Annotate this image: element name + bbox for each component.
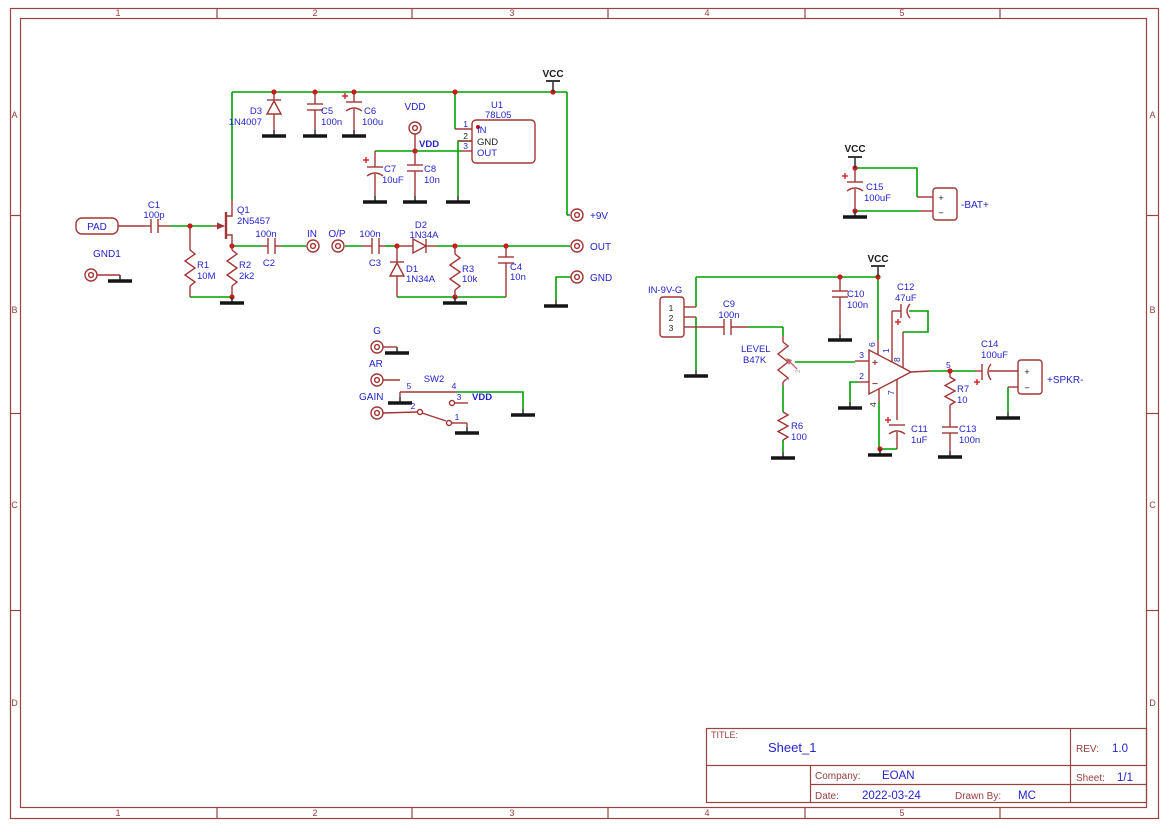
opamp-pin-5: 5 bbox=[946, 360, 951, 370]
potentiometer-level[interactable]: LEVEL B47K 3 2 1 bbox=[741, 336, 802, 386]
bat-plus-mark: + bbox=[938, 193, 944, 204]
diode-d3[interactable]: D3 1N4007 bbox=[229, 92, 281, 130]
opamp-pin-8: 8 bbox=[892, 357, 902, 362]
sw2-ref[interactable]: SW2 bbox=[424, 374, 445, 385]
frame-col-4-bottom: 4 bbox=[704, 808, 709, 818]
c15-val[interactable]: 100uF bbox=[864, 193, 891, 204]
capacitor-c12[interactable]: C12 47uF bbox=[892, 282, 917, 325]
d3-val[interactable]: 1N4007 bbox=[229, 117, 262, 128]
c14-val[interactable]: 100uF bbox=[981, 350, 1008, 361]
c1-val[interactable]: 100p bbox=[143, 210, 164, 221]
d3-ref[interactable]: D3 bbox=[250, 106, 262, 117]
net-label-vdd-sw[interactable]: VDD bbox=[472, 392, 492, 403]
port-gnd-label[interactable]: GND bbox=[590, 273, 612, 284]
port-bullseye-icon bbox=[571, 271, 583, 283]
c10-ref[interactable]: C10 bbox=[847, 289, 864, 300]
opamp-pin-2: 2 bbox=[859, 371, 864, 381]
ground-icon bbox=[771, 452, 795, 458]
c12-ref[interactable]: C12 bbox=[897, 282, 914, 293]
capacitor-c7[interactable]: C7 10uF bbox=[363, 151, 404, 196]
c3-ref[interactable]: C3 bbox=[369, 258, 381, 269]
port-g-label[interactable]: G bbox=[373, 326, 381, 337]
frame-col-2-top: 2 bbox=[312, 8, 317, 18]
opamp-minus-mark: − bbox=[872, 379, 878, 390]
ground-icon bbox=[446, 196, 470, 202]
ground-icon bbox=[511, 409, 535, 415]
ground-icon bbox=[843, 211, 867, 217]
schematic-canvas[interactable]: 1 2 3 4 5 1 2 3 4 5 A B C D A B C D bbox=[0, 0, 1169, 827]
port-vdd-label[interactable]: VDD bbox=[404, 102, 425, 113]
capacitor-c1[interactable]: C1 100p bbox=[143, 200, 170, 233]
spkr-plus-mark: + bbox=[1024, 367, 1030, 378]
c13-val[interactable]: 100n bbox=[959, 435, 980, 446]
u1-pin-name-out: OUT bbox=[477, 148, 497, 159]
port-gnd1-label[interactable]: GND1 bbox=[93, 249, 121, 260]
frame-row-d-right: D bbox=[1149, 698, 1156, 708]
ground-icon bbox=[443, 297, 467, 303]
sw2-pin-5: 5 bbox=[407, 381, 412, 391]
drawn-by-value: MC bbox=[1018, 790, 1036, 802]
r7-ref[interactable]: R7 bbox=[957, 384, 969, 395]
frame-col-5-bottom: 5 bbox=[899, 808, 904, 818]
pot-pin-1: 1 bbox=[784, 377, 791, 381]
sheet-title: Sheet_1 bbox=[768, 740, 816, 755]
capacitor-c3[interactable]: 100n C3 bbox=[359, 229, 385, 269]
c10-val[interactable]: 100n bbox=[847, 300, 868, 311]
frame-col-3-bottom: 3 bbox=[509, 808, 514, 818]
capacitor-c13[interactable]: C13 100n bbox=[942, 424, 980, 451]
resistor-r6[interactable]: R6 100 bbox=[778, 412, 807, 443]
ground-icon bbox=[388, 397, 412, 403]
r2-val[interactable]: 2k2 bbox=[239, 271, 254, 282]
port-bullseye-icon bbox=[571, 240, 583, 252]
u1-pin-name-in: IN bbox=[477, 125, 487, 136]
rev-label: REV: bbox=[1076, 744, 1099, 755]
sw2-pin-4: 4 bbox=[452, 381, 457, 391]
q1-ref[interactable]: Q1 bbox=[237, 205, 250, 216]
resistor-r7[interactable]: R7 10 bbox=[945, 371, 969, 427]
in9vg-pin-2: 2 bbox=[669, 313, 674, 323]
capacitor-c5[interactable]: C5 100n bbox=[307, 92, 342, 130]
frame-row-a-right: A bbox=[1149, 110, 1155, 120]
in9vg-label[interactable]: IN-9V-G bbox=[648, 285, 682, 296]
port-in[interactable]: IN bbox=[307, 229, 319, 252]
opamp-pin-1: 1 bbox=[881, 348, 891, 353]
port-ar-label[interactable]: AR bbox=[369, 359, 383, 370]
port-g[interactable]: G bbox=[371, 326, 397, 353]
opamp-pin-3: 3 bbox=[859, 350, 864, 360]
q1-val[interactable]: 2N5457 bbox=[237, 216, 270, 227]
net-label-vdd[interactable]: VDD bbox=[419, 139, 439, 150]
ground-icon bbox=[938, 451, 962, 457]
frame-col-5-top: 5 bbox=[899, 8, 904, 18]
port-9v[interactable]: +9V bbox=[571, 209, 608, 222]
u1-pin-2: 2 bbox=[463, 131, 468, 141]
junction-dots bbox=[187, 89, 952, 451]
capacitor-c2[interactable]: 100n C2 bbox=[255, 229, 281, 269]
port-bullseye-icon bbox=[371, 341, 383, 353]
frame-col-3-top: 3 bbox=[509, 8, 514, 18]
sheet-label: Sheet: bbox=[1076, 773, 1105, 784]
c6-val[interactable]: 100u bbox=[362, 117, 383, 128]
r7-val[interactable]: 10 bbox=[957, 395, 968, 406]
frame-col-1-top: 1 bbox=[115, 8, 120, 18]
c2-ref[interactable]: C2 bbox=[263, 258, 275, 269]
u1-pin-name-gnd: GND bbox=[477, 137, 498, 148]
port-gnd1[interactable]: GND1 bbox=[85, 249, 121, 281]
port-bullseye-icon bbox=[371, 374, 383, 386]
frame-row-b-right: B bbox=[1149, 305, 1155, 315]
c9-val[interactable]: 100n bbox=[718, 310, 739, 321]
wires[interactable] bbox=[170, 92, 1008, 452]
c11-ref[interactable]: C11 bbox=[911, 424, 928, 435]
capacitor-c11[interactable]: C11 1uF bbox=[885, 417, 928, 449]
drawn-by-label: Drawn By: bbox=[955, 791, 1001, 802]
vcc-flag-icon bbox=[871, 266, 885, 277]
ground-symbols bbox=[108, 130, 1020, 458]
resistor-r1[interactable]: R1 10M bbox=[185, 226, 216, 297]
company-label: Company: bbox=[815, 771, 861, 782]
capacitor-c9[interactable]: C9 100n bbox=[700, 299, 748, 335]
ground-icon bbox=[220, 297, 244, 303]
polarity-plus-icon bbox=[974, 379, 980, 385]
u1-val[interactable]: 78L05 bbox=[485, 110, 511, 121]
port-gain[interactable]: GAIN bbox=[359, 392, 383, 419]
vcc-flag-label[interactable]: VCC bbox=[867, 254, 888, 265]
polarity-plus-icon bbox=[363, 157, 369, 163]
date-label: Date: bbox=[815, 791, 839, 802]
c11-val[interactable]: 1uF bbox=[911, 435, 928, 446]
port-bullseye-icon bbox=[85, 269, 97, 281]
port-out-label[interactable]: OUT bbox=[590, 242, 611, 253]
ground-icon bbox=[684, 370, 708, 376]
ground-icon bbox=[544, 300, 568, 306]
ground-icon bbox=[385, 347, 409, 353]
port-bullseye-icon bbox=[571, 209, 583, 221]
r1-val[interactable]: 10M bbox=[197, 271, 216, 282]
port-ar[interactable]: AR bbox=[369, 359, 400, 386]
r2-ref[interactable]: R2 bbox=[239, 260, 251, 271]
ground-icon bbox=[828, 334, 852, 340]
polarity-plus-icon bbox=[895, 319, 901, 325]
capacitor-c14[interactable]: C14 100uF bbox=[974, 339, 1018, 385]
sw2-pin-1: 1 bbox=[455, 412, 460, 422]
u1-pin-1: 1 bbox=[463, 119, 468, 129]
ground-icon bbox=[403, 196, 427, 202]
port-out[interactable]: OUT bbox=[571, 240, 611, 253]
polarity-plus-icon bbox=[885, 417, 891, 423]
r3-val[interactable]: 10k bbox=[462, 274, 478, 285]
port-pad[interactable]: PAD bbox=[76, 218, 145, 234]
in9vg-pin-3: 3 bbox=[669, 323, 674, 333]
c9-ref[interactable]: C9 bbox=[723, 299, 735, 310]
ground-icon bbox=[996, 412, 1020, 418]
resistor-r3[interactable]: R3 10k bbox=[450, 246, 478, 297]
capacitor-c6[interactable]: C6 100u bbox=[342, 92, 383, 130]
in9vg-pin-1: 1 bbox=[669, 303, 674, 313]
bat-label[interactable]: -BAT+ bbox=[961, 200, 989, 211]
c6-ref[interactable]: C6 bbox=[364, 106, 376, 117]
polarity-plus-icon bbox=[342, 93, 348, 99]
rev-value: 1.0 bbox=[1112, 743, 1128, 755]
port-op-label[interactable]: O/P bbox=[328, 229, 346, 240]
ground-icon bbox=[455, 427, 479, 433]
c5-ref[interactable]: C5 bbox=[321, 106, 333, 117]
sw2-pin-2: 2 bbox=[411, 401, 416, 411]
capacitor-c4[interactable]: C4 10n bbox=[498, 246, 526, 297]
pot-val[interactable]: B47K bbox=[743, 355, 767, 366]
ground-icon bbox=[108, 275, 132, 281]
schematic-sheet: 1 2 3 4 5 1 2 3 4 5 A B C D A B C D bbox=[0, 0, 1169, 827]
port-bullseye-icon bbox=[332, 240, 344, 252]
r6-val[interactable]: 100 bbox=[791, 432, 807, 443]
r6-ref[interactable]: R6 bbox=[791, 421, 803, 432]
ic-u1[interactable]: U1 78L05 1 2 3 IN GND OUT bbox=[455, 100, 535, 163]
port-gain-label[interactable]: GAIN bbox=[359, 392, 383, 403]
capacitor-c10[interactable]: C10 100n bbox=[832, 277, 868, 334]
bat-minus-mark: − bbox=[938, 208, 944, 219]
sw2-pin-3: 3 bbox=[457, 392, 462, 402]
title-label: TITLE: bbox=[711, 730, 738, 740]
frame-row-b-left: B bbox=[11, 305, 17, 315]
spkr-minus-mark: − bbox=[1024, 383, 1030, 394]
frame-row-c-left: C bbox=[11, 500, 18, 510]
port-bullseye-icon bbox=[409, 122, 421, 134]
c5-val[interactable]: 100n bbox=[321, 117, 342, 128]
switch-sw2[interactable]: SW2 5 4 3 2 1 bbox=[383, 374, 468, 427]
ground-icon bbox=[262, 130, 286, 136]
spkr-label[interactable]: +SPKR- bbox=[1047, 375, 1083, 386]
port-gnd[interactable]: GND bbox=[571, 271, 612, 284]
company-value: EOAN bbox=[882, 770, 915, 782]
vcc-flag-label[interactable]: VCC bbox=[844, 144, 865, 155]
title-block: TITLE: Sheet_1 REV: 1.0 Company: EOAN Sh… bbox=[707, 729, 1147, 803]
opamp-pin-4: 4 bbox=[868, 402, 878, 407]
pot-pin-3: 3 bbox=[784, 344, 791, 348]
c7-ref[interactable]: C7 bbox=[384, 164, 396, 175]
c8-val[interactable]: 10n bbox=[424, 175, 440, 186]
capacitor-c15[interactable]: C15 100uF bbox=[842, 168, 891, 211]
port-op[interactable]: O/P bbox=[328, 229, 346, 252]
vcc-flag-icon bbox=[848, 157, 862, 168]
capacitor-c8[interactable]: C8 10n bbox=[407, 151, 440, 196]
opamp-plus-mark: + bbox=[872, 358, 878, 369]
frame-row-a-left: A bbox=[11, 110, 17, 120]
connector-in9vg[interactable]: 1 2 3 IN-9V-G bbox=[648, 285, 700, 337]
c14-ref[interactable]: C14 bbox=[981, 339, 998, 350]
frame-row-d-left: D bbox=[11, 698, 18, 708]
sheet-value: 1/1 bbox=[1117, 772, 1133, 784]
c3-val[interactable]: 100n bbox=[359, 229, 380, 240]
ground-icon bbox=[868, 449, 892, 455]
c13-ref[interactable]: C13 bbox=[959, 424, 976, 435]
port-9v-label[interactable]: +9V bbox=[590, 211, 608, 222]
port-bullseye-icon bbox=[307, 240, 319, 252]
d2-val[interactable]: 1N34A bbox=[409, 230, 439, 241]
polarity-plus-icon bbox=[842, 173, 848, 179]
pot-ref[interactable]: LEVEL bbox=[741, 344, 771, 355]
ground-icon bbox=[342, 130, 366, 136]
opamp[interactable]: + − 3 2 6 1 8 5 7 4 bbox=[855, 311, 951, 420]
c2-val[interactable]: 100n bbox=[255, 229, 276, 240]
opamp-pin-6: 6 bbox=[867, 342, 877, 347]
date-value: 2022-03-24 bbox=[862, 790, 921, 802]
frame-row-c-right: C bbox=[1149, 500, 1156, 510]
frame-col-1-bottom: 1 bbox=[115, 808, 120, 818]
connector-bat[interactable]: + − -BAT+ bbox=[917, 188, 989, 220]
port-in-label[interactable]: IN bbox=[307, 229, 317, 240]
frame-col-2-bottom: 2 bbox=[312, 808, 317, 818]
vcc-flag-icon bbox=[546, 81, 560, 92]
port-pad-label[interactable]: PAD bbox=[87, 222, 107, 233]
port-bullseye-icon bbox=[371, 407, 383, 419]
u1-pin-3: 3 bbox=[463, 141, 468, 151]
r1-ref[interactable]: R1 bbox=[197, 260, 209, 271]
opamp-pin-7: 7 bbox=[886, 390, 896, 395]
ground-icon bbox=[363, 196, 387, 202]
pot-pin-2: 2 bbox=[795, 369, 802, 373]
d1-val[interactable]: 1N34A bbox=[406, 274, 436, 285]
c8-ref[interactable]: C8 bbox=[424, 164, 436, 175]
resistor-r2[interactable]: R2 2k2 bbox=[227, 246, 254, 297]
c15-ref[interactable]: C15 bbox=[866, 182, 883, 193]
connector-spkr[interactable]: + − +SPKR- bbox=[1008, 360, 1083, 394]
c4-val[interactable]: 10n bbox=[510, 272, 526, 283]
c12-val[interactable]: 47uF bbox=[895, 293, 917, 304]
drawing-frame: 1 2 3 4 5 1 2 3 4 5 A B C D A B C D bbox=[11, 8, 1159, 819]
ground-icon bbox=[303, 130, 327, 136]
vcc-flag-label[interactable]: VCC bbox=[542, 69, 563, 80]
frame-col-4-top: 4 bbox=[704, 8, 709, 18]
c7-val[interactable]: 10uF bbox=[382, 175, 404, 186]
ground-icon bbox=[838, 402, 862, 408]
diode-d2[interactable]: D2 1N34A bbox=[397, 220, 439, 253]
